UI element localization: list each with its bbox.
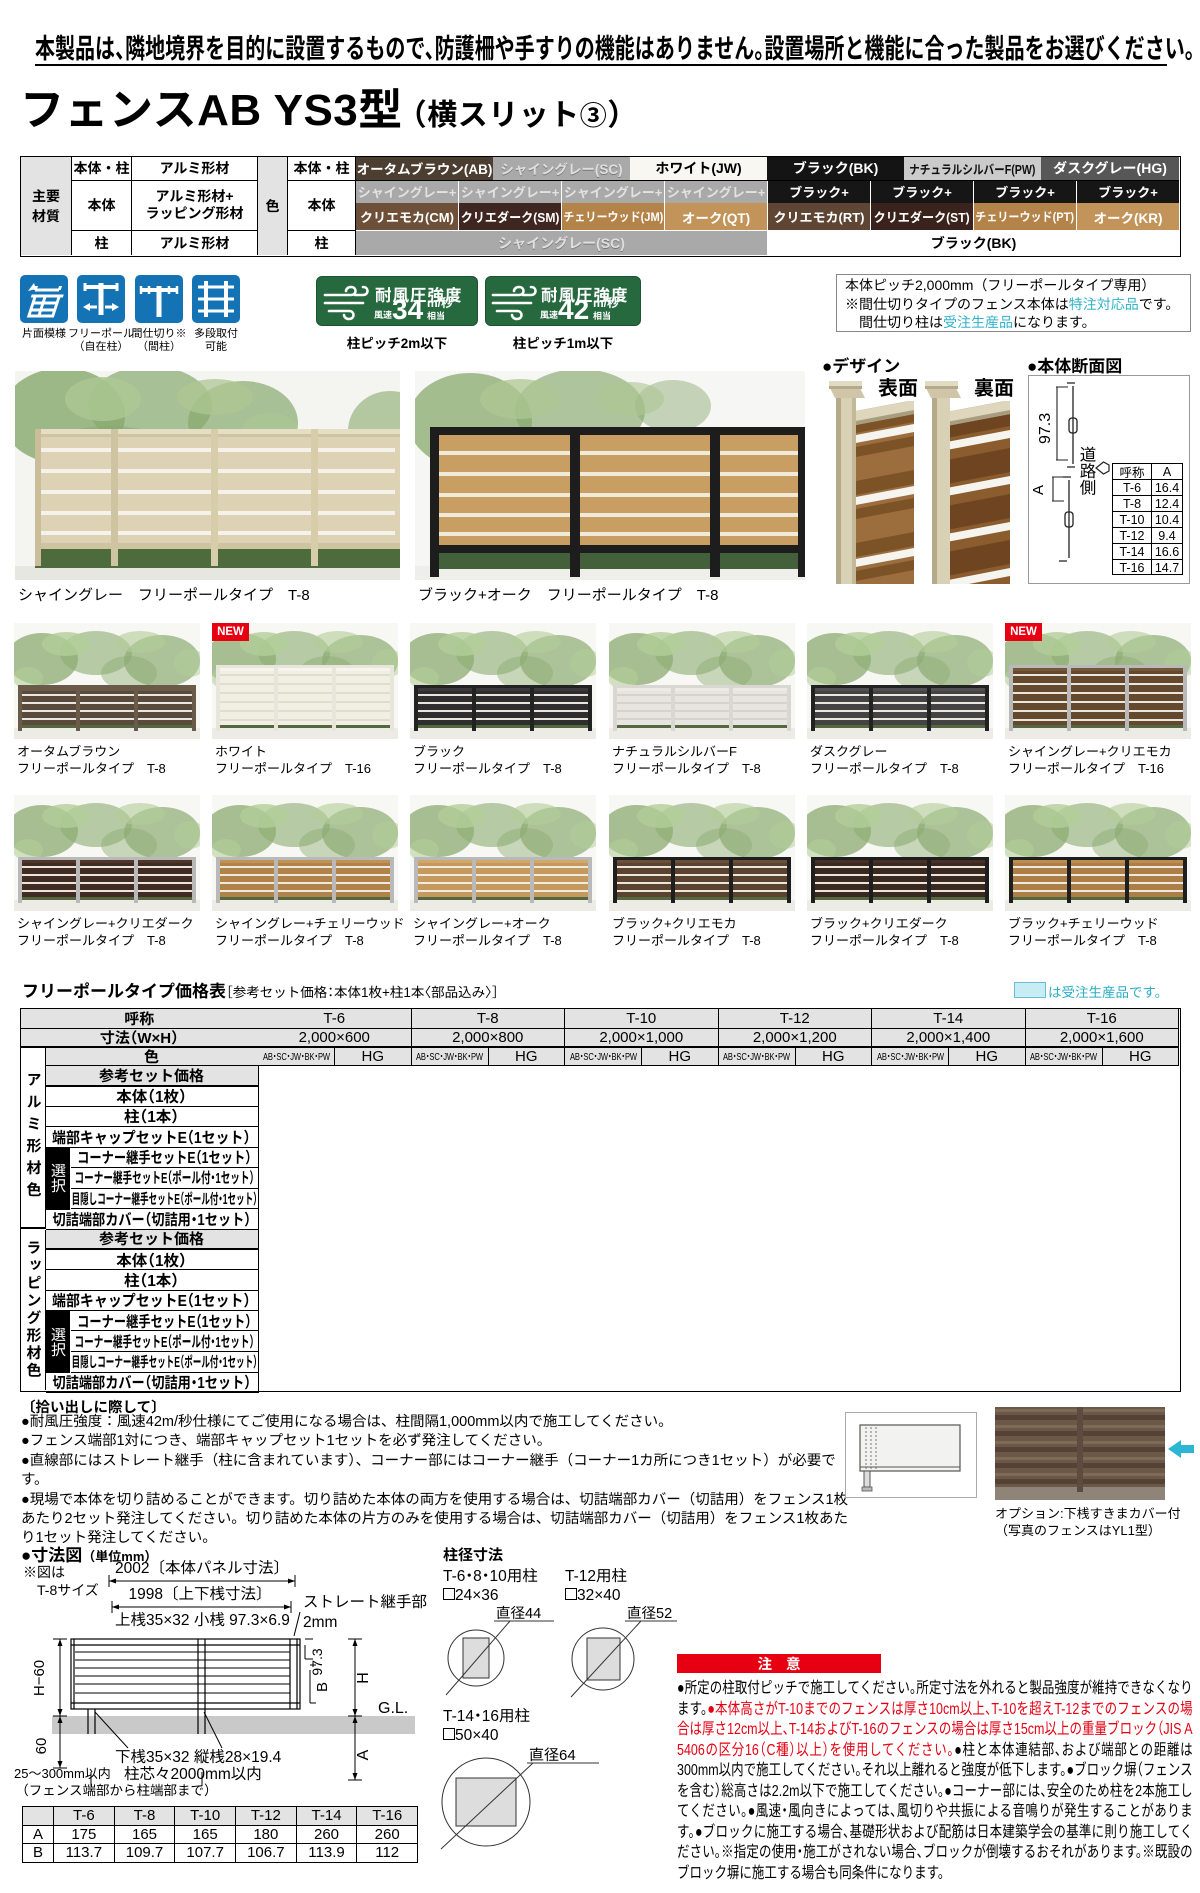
svg-text:上桟35×32 小桟 97.3×6.9: 上桟35×32 小桟 97.3×6.9 — [115, 1611, 290, 1629]
svg-text:2mm: 2mm — [303, 1614, 337, 1631]
svg-text:道路側: 道路側 — [1077, 446, 1096, 496]
svg-text:B: B — [314, 1682, 331, 1692]
svg-text:直径52: 直径52 — [627, 1605, 672, 1622]
svg-text:H: H — [355, 1672, 372, 1684]
svg-text:97.3: 97.3 — [309, 1648, 325, 1675]
svg-text:A: A — [355, 1749, 372, 1760]
svg-text:60: 60 — [33, 1738, 50, 1755]
svg-text:97.3: 97.3 — [1037, 413, 1054, 444]
svg-text:直径44: 直径44 — [496, 1605, 541, 1622]
svg-text:直径64: 直径64 — [529, 1747, 576, 1764]
svg-text:2002〔本体パネル寸法〕: 2002〔本体パネル寸法〕 — [115, 1559, 289, 1577]
svg-text:ストレート継手部: ストレート継手部 — [303, 1593, 427, 1611]
svg-text:H−60: H−60 — [31, 1660, 48, 1696]
svg-text:1998〔上下桟寸法〕: 1998〔上下桟寸法〕 — [129, 1585, 272, 1603]
svg-text:下桟35×32 縦桟28×19.4: 下桟35×32 縦桟28×19.4 — [115, 1748, 282, 1766]
svg-text:A: A — [1030, 485, 1047, 495]
svg-text:G.L.: G.L. — [378, 1700, 408, 1717]
